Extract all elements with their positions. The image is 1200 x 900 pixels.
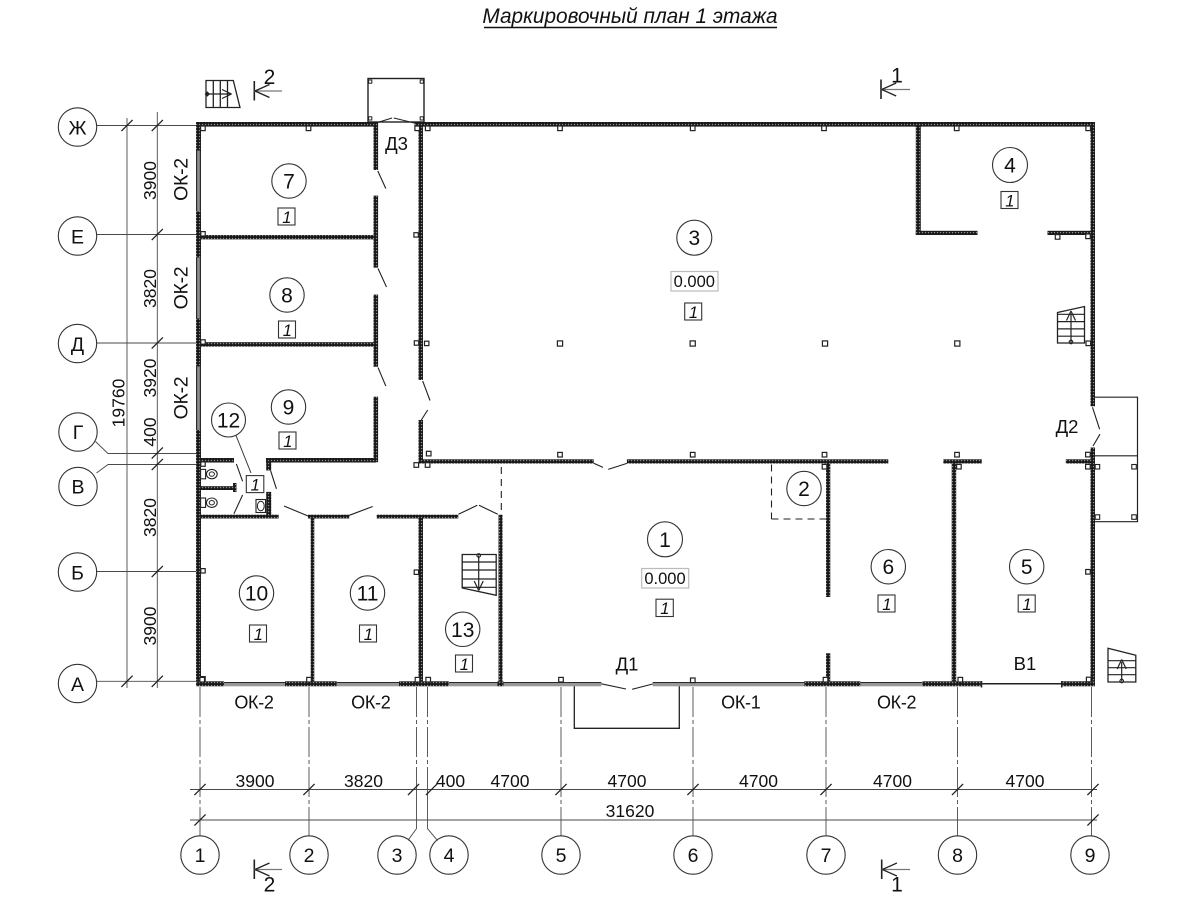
svg-text:8: 8 [281, 285, 293, 308]
svg-text:ОК-2: ОК-2 [171, 267, 193, 310]
svg-text:3820: 3820 [140, 498, 160, 537]
svg-text:4700: 4700 [491, 771, 530, 791]
svg-text:2: 2 [798, 478, 810, 501]
svg-text:2: 2 [304, 845, 315, 867]
svg-text:3820: 3820 [140, 269, 160, 308]
svg-text:9: 9 [283, 397, 295, 420]
svg-text:13: 13 [451, 619, 474, 642]
svg-text:1: 1 [660, 600, 669, 618]
svg-text:4700: 4700 [1006, 771, 1045, 791]
svg-text:1: 1 [891, 65, 903, 88]
svg-text:3900: 3900 [236, 771, 275, 791]
svg-text:4: 4 [1004, 155, 1016, 178]
svg-text:1: 1 [689, 304, 698, 322]
svg-text:31620: 31620 [606, 801, 655, 821]
svg-text:11: 11 [357, 583, 379, 606]
svg-text:400: 400 [436, 771, 465, 791]
svg-text:8: 8 [952, 845, 963, 867]
svg-text:ОК-1: ОК-1 [721, 692, 761, 712]
svg-text:А: А [71, 674, 84, 696]
svg-text:0.000: 0.000 [644, 570, 685, 588]
svg-text:ОК-2: ОК-2 [877, 692, 917, 712]
svg-text:Д1: Д1 [616, 654, 639, 675]
svg-text:4700: 4700 [873, 771, 912, 791]
svg-text:1: 1 [460, 656, 469, 674]
svg-text:ОК-2: ОК-2 [171, 158, 193, 201]
svg-text:1: 1 [659, 529, 671, 552]
svg-text:4700: 4700 [739, 771, 778, 791]
svg-text:1: 1 [882, 596, 891, 614]
svg-text:10: 10 [245, 583, 268, 606]
svg-text:9: 9 [1085, 845, 1096, 867]
svg-text:3: 3 [688, 227, 700, 250]
svg-text:400: 400 [140, 417, 160, 446]
svg-text:3900: 3900 [140, 161, 160, 200]
svg-text:3820: 3820 [344, 771, 383, 791]
svg-text:3: 3 [392, 845, 403, 867]
svg-text:7: 7 [821, 845, 832, 867]
svg-text:ОК-2: ОК-2 [171, 377, 193, 420]
svg-text:4700: 4700 [608, 771, 647, 791]
svg-text:1: 1 [891, 874, 903, 897]
svg-text:1: 1 [251, 476, 260, 494]
svg-text:12: 12 [217, 410, 240, 433]
svg-text:6: 6 [882, 556, 894, 579]
svg-text:ОК-2: ОК-2 [234, 692, 274, 712]
svg-text:ОК-2: ОК-2 [351, 692, 391, 712]
svg-text:1: 1 [1022, 596, 1031, 614]
svg-text:1: 1 [282, 209, 291, 227]
svg-text:1: 1 [283, 433, 292, 451]
svg-text:1: 1 [283, 322, 292, 340]
svg-text:1: 1 [195, 845, 206, 867]
svg-text:1: 1 [364, 626, 373, 644]
svg-text:5: 5 [556, 845, 567, 867]
svg-text:В: В [71, 477, 84, 499]
svg-text:5: 5 [1021, 556, 1033, 579]
svg-text:Б: Б [71, 563, 84, 585]
svg-text:19760: 19760 [109, 378, 129, 427]
svg-text:2: 2 [264, 66, 276, 89]
svg-text:Е: Е [71, 227, 84, 249]
svg-text:Маркировочный план 1 этажа: Маркировочный план 1 этажа [482, 5, 777, 28]
svg-text:1: 1 [1005, 192, 1014, 210]
svg-text:0.000: 0.000 [674, 273, 715, 291]
svg-text:В1: В1 [1014, 653, 1037, 674]
svg-text:Д3: Д3 [385, 133, 408, 154]
svg-text:3920: 3920 [140, 358, 160, 397]
svg-text:3900: 3900 [140, 606, 160, 645]
svg-text:Ж: Ж [68, 118, 86, 140]
svg-text:2: 2 [264, 874, 276, 897]
svg-text:Г: Г [73, 422, 84, 444]
svg-text:1: 1 [254, 626, 263, 644]
svg-text:Д: Д [71, 334, 84, 356]
svg-text:6: 6 [688, 845, 699, 867]
svg-text:7: 7 [283, 171, 295, 194]
svg-text:4: 4 [444, 845, 455, 867]
svg-text:Д2: Д2 [1056, 416, 1079, 437]
